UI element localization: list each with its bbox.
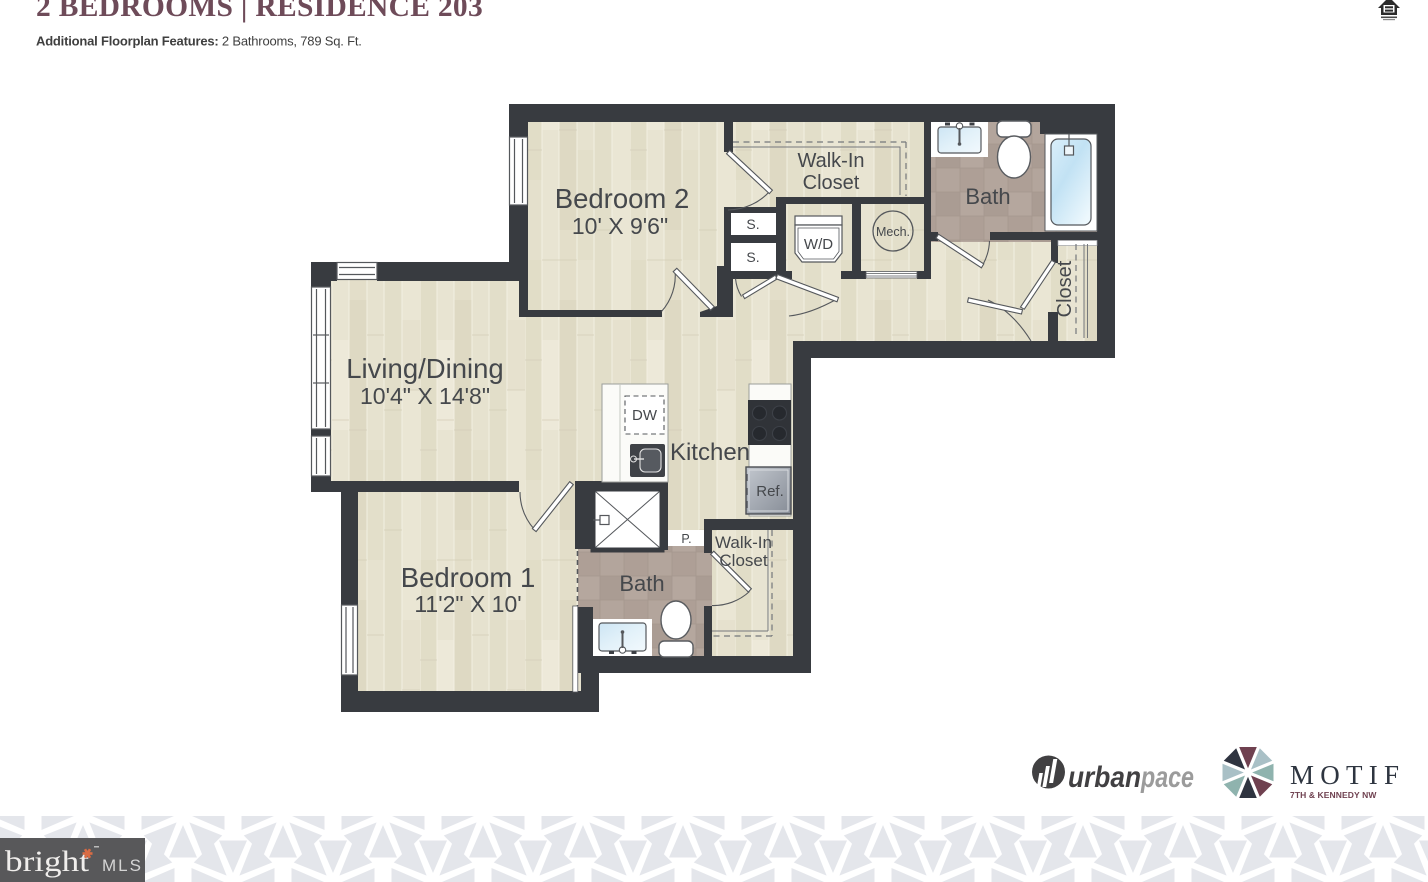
svg-text:S.: S. (746, 216, 759, 232)
svg-text:pace: pace (1140, 761, 1194, 794)
svg-text:Living/Dining: Living/Dining (346, 353, 503, 384)
svg-text:urban: urban (1068, 761, 1141, 794)
svg-text:MLS: MLS (102, 856, 143, 875)
svg-text:Closet: Closet (803, 172, 860, 194)
svg-text:Bedroom 1: Bedroom 1 (401, 562, 536, 593)
svg-text:P.: P. (681, 532, 691, 546)
svg-text:bright: bright (5, 845, 90, 878)
svg-text:Bedroom 2: Bedroom 2 (555, 183, 690, 214)
svg-text:Bath: Bath (619, 571, 664, 596)
svg-text:10'4" X 14'8": 10'4" X 14'8" (360, 383, 490, 409)
svg-text:S.: S. (746, 249, 759, 265)
svg-text:DW: DW (632, 407, 658, 424)
svg-text:Walk-In: Walk-In (715, 533, 772, 552)
svg-text:Closet: Closet (719, 551, 767, 570)
svg-text:11'2" X 10': 11'2" X 10' (414, 591, 521, 617)
svg-text:Walk-In: Walk-In (797, 150, 864, 172)
svg-text:Closet: Closet (1054, 260, 1076, 317)
svg-text:Additional Floorplan Features:: Additional Floorplan Features: 2 Bathroo… (36, 34, 362, 49)
svg-text:Kitchen: Kitchen (670, 439, 750, 466)
svg-text:Mech.: Mech. (876, 225, 910, 239)
svg-text:7TH & KENNEDY NW: 7TH & KENNEDY NW (1290, 790, 1377, 800)
svg-text:W/D: W/D (804, 236, 833, 253)
svg-text:10' X 9'6": 10' X 9'6" (572, 213, 668, 239)
svg-text:2 BEDROOMS | RESIDENCE 203: 2 BEDROOMS | RESIDENCE 203 (36, 0, 483, 23)
svg-text:Ref.: Ref. (756, 483, 784, 500)
svg-text:Bath: Bath (965, 184, 1010, 209)
